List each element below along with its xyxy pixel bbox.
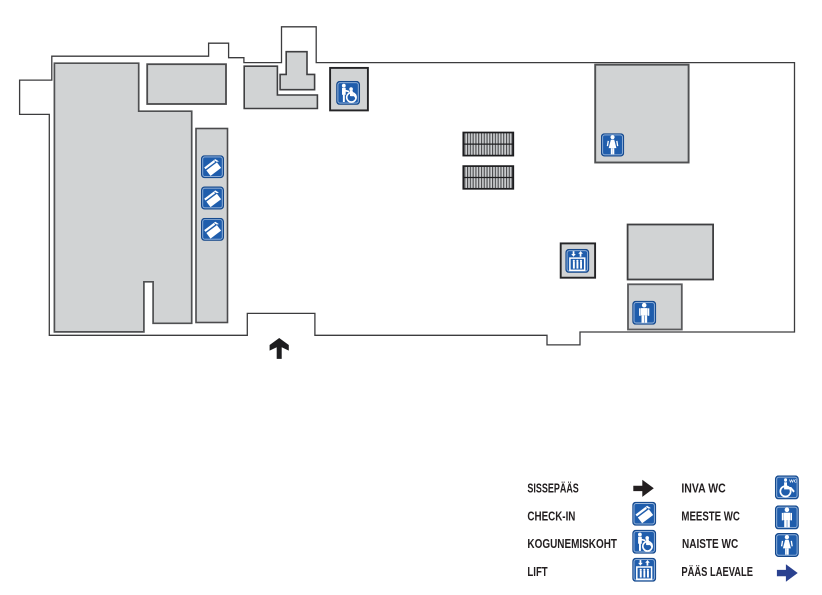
svg-text:LIFT: LIFT [527,565,548,579]
svg-text:SISSEPÄÄS: SISSEPÄÄS [527,481,578,496]
svg-text:PÄÄS LAEVALE: PÄÄS LAEVALE [681,564,753,579]
svg-text:NAISTE WC: NAISTE WC [682,537,738,551]
svg-text:MEESTE WC: MEESTE WC [681,509,740,523]
svg-text:INVA WC: INVA WC [681,482,725,496]
svg-text:CHECK-IN: CHECK-IN [527,509,575,523]
svg-text:KOGUNEMISKOHT: KOGUNEMISKOHT [527,537,617,551]
